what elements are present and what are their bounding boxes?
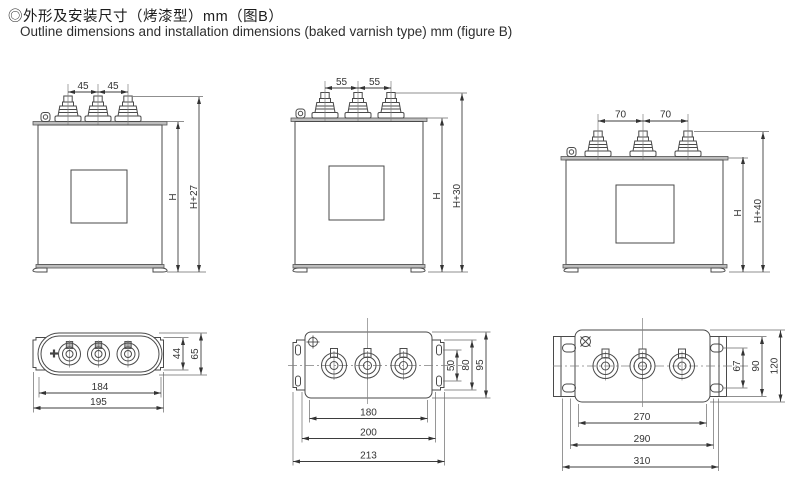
dim-overall-height: H+30 <box>452 183 463 208</box>
dim-spacing-right: 55 <box>369 77 381 88</box>
front-view-medium: 55 55 H H+30 <box>270 65 480 290</box>
dim-spacing-left: 55 <box>336 77 348 88</box>
page-title: ◎外形及安装尺寸（烤漆型）mm（图B） <box>8 5 283 26</box>
base-bar <box>36 265 164 269</box>
dim-plate-width: 90 <box>751 360 762 372</box>
front-view-small: 45 45 H H+27 <box>20 65 215 290</box>
ground-screw <box>296 109 305 118</box>
capacitor-body <box>561 114 728 272</box>
dimension-lengths: 184 195 <box>34 372 164 413</box>
dim-overall-height: H+40 <box>753 198 764 223</box>
mounting-bracket-right <box>710 337 727 397</box>
left-foot <box>33 268 47 272</box>
mounting-bracket-left <box>554 337 576 397</box>
dim-spacing-left: 45 <box>77 81 89 92</box>
dim-body-height: H <box>432 192 443 199</box>
dimension-lengths: 270 290 310 <box>563 399 719 472</box>
dim-body-width: 95 <box>475 359 486 371</box>
dim-hole-length: 270 <box>634 412 651 423</box>
lid-bar <box>291 118 427 122</box>
right-foot <box>411 268 425 272</box>
dim-overall-length: 195 <box>90 397 107 408</box>
top-view-medium: 50 80 95 180 200 213 <box>285 315 495 480</box>
dim-overall-length: 310 <box>634 456 651 467</box>
right-foot <box>153 268 167 272</box>
left-foot <box>564 268 578 272</box>
dimension-lengths: 180 200 213 <box>293 392 445 466</box>
dim-body-length: 184 <box>92 382 109 393</box>
dim-hole-spacing: 67 <box>732 360 743 372</box>
top-view-small: 44 65 184 195 <box>25 325 220 420</box>
front-view-large: 70 70 H H+40 <box>545 65 795 290</box>
dim-body-width: 120 <box>770 357 781 374</box>
case-outline <box>566 160 723 265</box>
left-foot <box>293 268 307 272</box>
dim-spacing-right: 70 <box>660 110 672 121</box>
mounting-bracket-right <box>432 340 444 390</box>
case-outline <box>38 125 162 265</box>
dim-body-length: 200 <box>360 428 377 439</box>
dim-plate-width: 44 <box>172 348 183 360</box>
case-outline <box>305 332 432 398</box>
dim-hole-spacing: 50 <box>446 360 457 372</box>
dim-overall-height: H+27 <box>189 184 200 209</box>
page-subtitle: Outline dimensions and installation dime… <box>20 24 512 39</box>
right-foot <box>711 268 725 272</box>
dim-body-height: H <box>168 193 179 200</box>
dim-spacing-right: 45 <box>107 81 119 92</box>
dim-hole-length: 180 <box>360 408 377 419</box>
base-bar <box>293 265 425 269</box>
top-view-large: 67 90 120 270 290 310 <box>550 315 801 485</box>
dim-body-length: 290 <box>634 434 651 445</box>
ground-screw <box>567 148 576 157</box>
base-bar <box>563 265 727 269</box>
lid-bar <box>561 157 728 161</box>
dim-plate-width: 80 <box>461 359 472 371</box>
mounting-bracket-left <box>293 340 305 390</box>
dim-body-height: H <box>733 209 744 216</box>
capacitor-body <box>33 84 167 272</box>
dim-overall-length: 213 <box>360 451 377 462</box>
ground-screw <box>41 113 50 122</box>
capacitor-body <box>291 81 427 272</box>
figure-b-drawing-sheet: ◎外形及安装尺寸（烤漆型）mm（图B） Outline dimensions a… <box>0 0 801 495</box>
dim-spacing-left: 70 <box>615 110 627 121</box>
lid-bar <box>33 122 167 126</box>
dim-body-width: 65 <box>190 348 201 360</box>
dimension-widths: 44 65 <box>159 333 207 375</box>
case-outline <box>295 122 423 265</box>
